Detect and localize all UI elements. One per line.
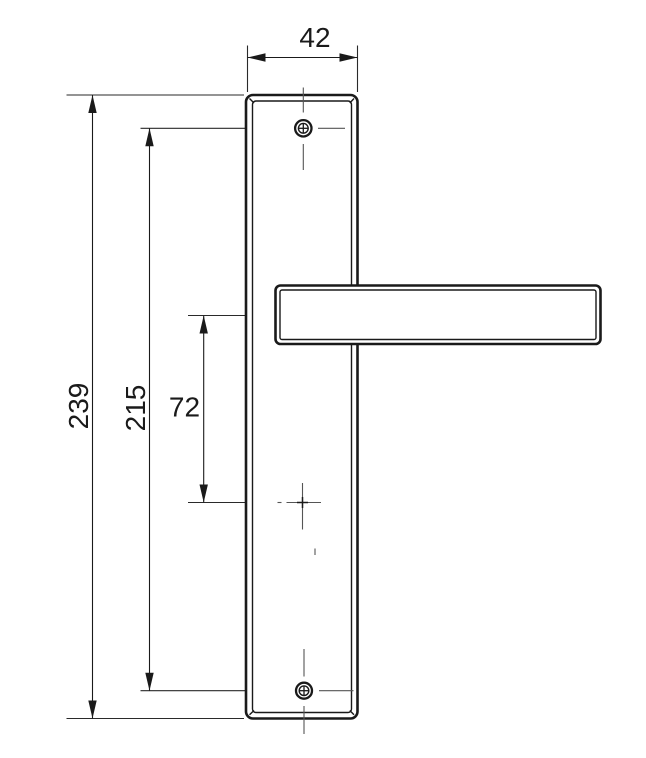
handle-outline [276,286,601,345]
dimension-label-handle-to-spindle: 72 [169,392,200,423]
arrowhead-up [88,95,96,113]
dimension-label-plate-width: 42 [299,22,330,53]
backplate-outline [246,95,358,719]
arrowhead-up [200,316,208,334]
arrowhead-up [145,128,153,146]
lever-handle [276,286,601,345]
dimension-label-plate-height: 239 [63,383,94,430]
dimension-label-screw-spacing: 215 [120,385,151,432]
arrowhead-left [248,53,266,61]
dimension-plate-height: 239 [63,95,244,719]
backplate [246,95,358,719]
arrowhead-down [145,673,153,691]
arrowhead-right [340,53,358,61]
arrowhead-down [88,701,96,719]
technical-drawing-page: 239 215 72 [0,0,646,758]
arrowhead-down [200,485,208,503]
door-handle-drawing: 239 215 72 [0,0,646,758]
dimension-plate-width: 42 [248,22,358,92]
